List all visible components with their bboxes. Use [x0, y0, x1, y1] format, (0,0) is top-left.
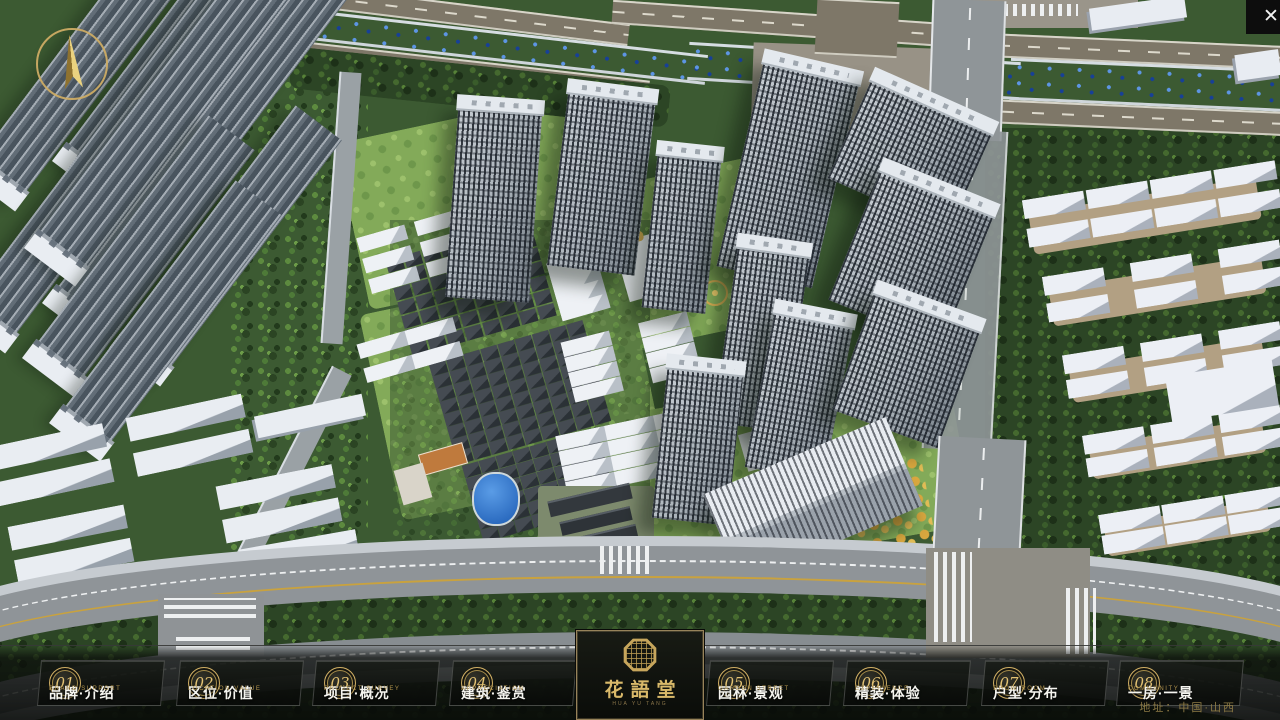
ferris-wheel-hub: [712, 290, 718, 296]
crosswalk: [164, 598, 256, 618]
roof-cap: [0, 296, 20, 354]
brand-name: 花語堂: [577, 675, 703, 702]
nav-item-floorplan[interactable]: 07户型·分布SHOW ROOM: [981, 660, 1109, 706]
seal-icon: [623, 638, 657, 672]
tower: [445, 97, 543, 302]
nav-item-brand[interactable]: 01品牌·介绍BRAND SUPPORT: [37, 660, 165, 706]
roof-cap: [655, 140, 724, 163]
crosswalk: [934, 552, 972, 642]
nav-item-location[interactable]: 02区位·价值LOCATION VALUE: [176, 660, 304, 706]
north-needle-icon: [50, 31, 94, 100]
nav-label-en: PROJECT SURVEY: [324, 686, 401, 692]
nav-label-en: GARDEN STREET: [718, 686, 790, 692]
nav-item-interior[interactable]: 06精装·体验EXPERIENCE: [843, 660, 971, 706]
road: [612, 0, 963, 48]
compass-icon: [36, 28, 108, 100]
nav-label-en: SHOW ROOM: [993, 686, 1046, 692]
nav-label-en: COMMUNITY: [1128, 686, 1179, 692]
nav-label-en: BRAND SUPPORT: [49, 686, 121, 692]
roof-cap: [0, 154, 30, 212]
nav-label-en: LOCATION VALUE: [188, 686, 262, 692]
brand-caption: HUA YU TANG: [577, 701, 703, 707]
close-icon: ✕: [1263, 0, 1279, 34]
address-label: 地址：中国·山西: [1139, 699, 1236, 715]
nav-item-project[interactable]: 03项目·概况PROJECT SURVEY: [312, 660, 440, 706]
road: [815, 0, 900, 58]
crosswalk: [600, 546, 652, 574]
close-button[interactable]: ✕: [1246, 0, 1280, 34]
pool: [472, 472, 520, 526]
logo-panel: 花語堂 HUA YU TANG: [576, 630, 704, 720]
nav-label-en: APPRECIATION: [461, 686, 524, 692]
nav-item-architecture[interactable]: 04建筑·鉴赏APPRECIATION: [449, 660, 577, 706]
nav-item-garden[interactable]: 05园林·景观GARDEN STREET: [706, 660, 834, 706]
seal-inner: [626, 641, 654, 669]
aerial-scene: ✕ 01品牌·介绍BRAND SUPPORT 02区位·价值LOCATION V…: [0, 0, 1280, 720]
nav-label-en: EXPERIENCE: [855, 686, 910, 692]
